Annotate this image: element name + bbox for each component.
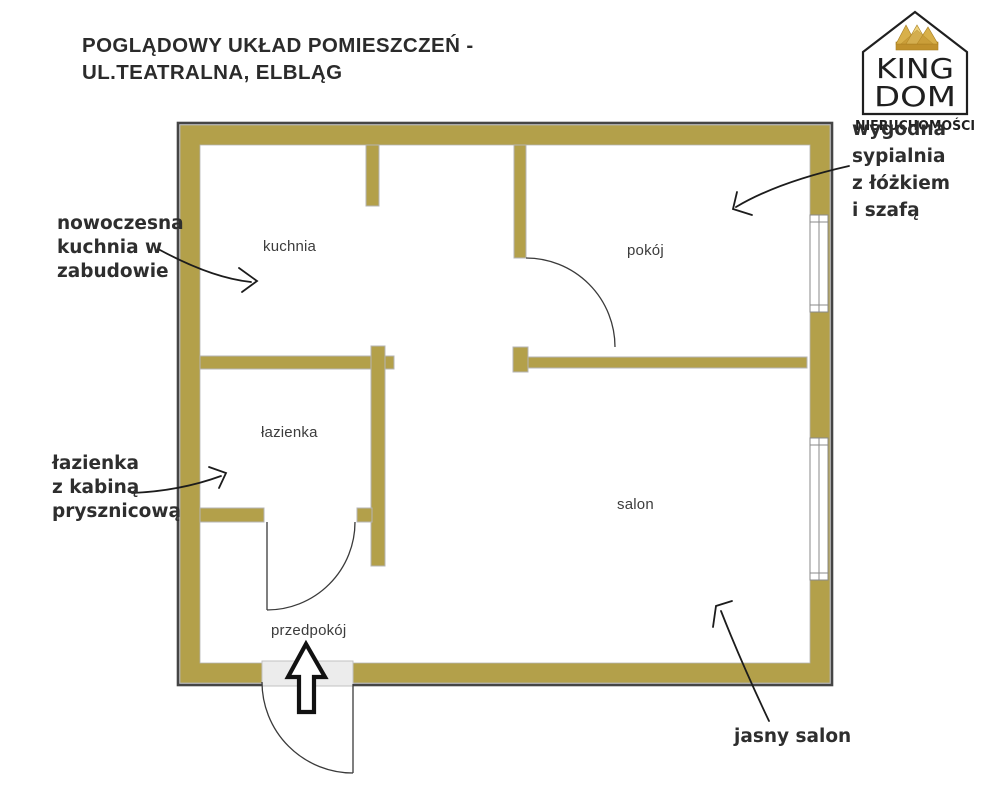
floorplan-page: KING DOM NIERUCHOMOŚCI POGLĄDOWY UKŁAD P… — [0, 0, 982, 800]
bedroom-living-wall — [528, 357, 807, 368]
room-label-bedroom: pokój — [627, 242, 664, 259]
bathroom-door-arc — [267, 522, 355, 610]
bathroom-bottom-wall-right — [357, 508, 372, 522]
room-label-bathroom: łazienka — [261, 424, 318, 441]
kitchen-wall-stub — [366, 145, 379, 206]
room-label-hallway: przedpokój — [271, 622, 346, 639]
kingdom-logo: KING DOM NIERUCHOMOŚCI — [843, 2, 982, 134]
floorplan-drawing — [0, 0, 982, 800]
bathroom-right-wall — [371, 346, 385, 566]
annotation-bathroom: łazienka z kabiną prysznicową — [52, 452, 181, 524]
annotation-kitchen: nowoczesna kuchnia w zabudowie — [57, 212, 184, 284]
annotation-arrows — [132, 166, 849, 721]
room-label-living-room: salon — [617, 496, 654, 513]
page-title: POGLĄDOWY UKŁAD POMIESZCZEŃ - UL.TEATRAL… — [82, 33, 474, 86]
bedroom-door-arc — [526, 258, 615, 347]
room-label-kitchen: kuchnia — [263, 238, 316, 255]
annotation-living-room: jasny salon — [734, 726, 851, 748]
living-room-arrow-icon — [713, 601, 769, 721]
bedroom-window — [810, 215, 828, 312]
living-room-window — [810, 438, 828, 580]
kitchen-bedroom-divider-wall — [514, 145, 526, 258]
entrance-direction-arrow-icon — [288, 644, 325, 712]
bedroom-living-wall-stub — [513, 347, 528, 372]
logo-brand-line2: DOM — [874, 80, 956, 113]
kitchen-bathroom-wall — [200, 356, 394, 369]
bathroom-bottom-wall-left — [200, 508, 264, 522]
annotation-bedroom: wygodna sypialnia z łóżkiem i szafą — [852, 116, 950, 224]
interior-walls — [200, 145, 807, 566]
